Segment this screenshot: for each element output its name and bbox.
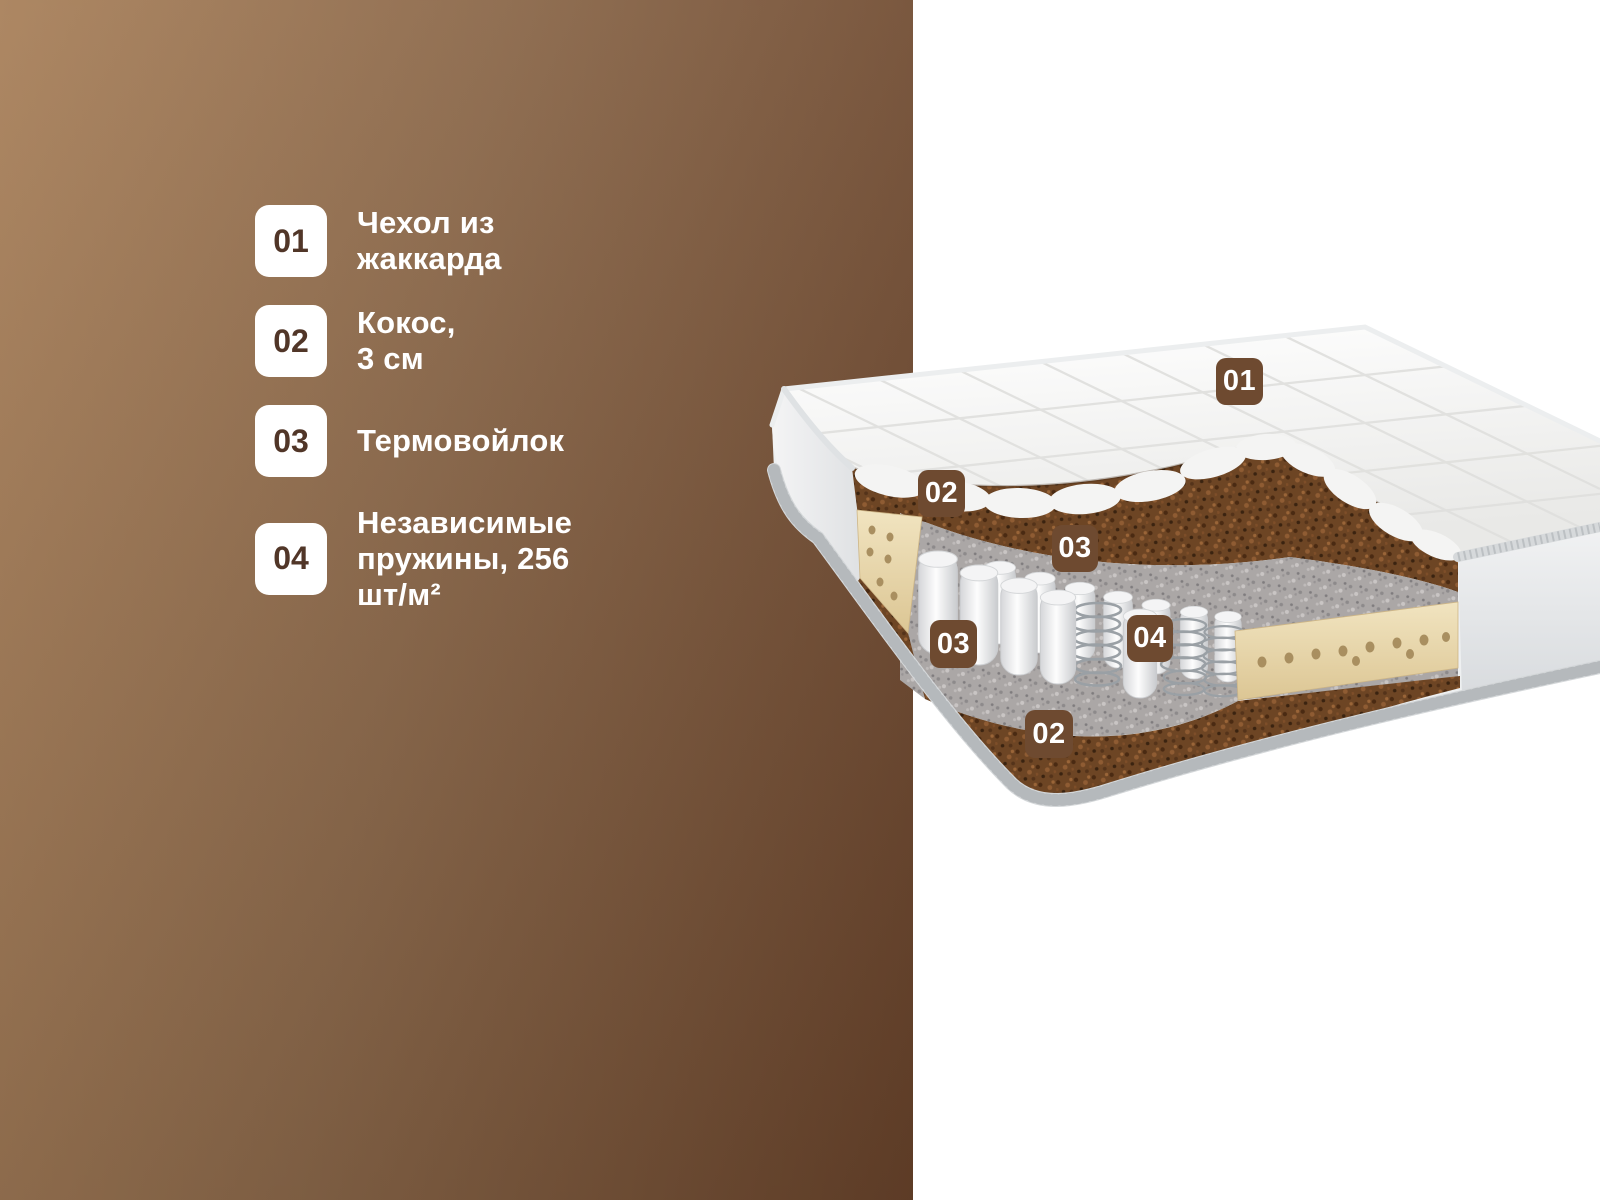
legend-item-felt: 03 Термовойлок — [255, 405, 564, 477]
legend-item-label: Независимые пружины, 256 шт/м² — [357, 505, 572, 613]
legend-number-badge: 01 — [255, 205, 327, 277]
mattress-label-felt-top: 03 — [1052, 525, 1098, 572]
legend-item-springs: 04 Независимые пружины, 256 шт/м² — [255, 505, 572, 613]
legend-number-badge: 02 — [255, 305, 327, 377]
legend-item-label: Термовойлок — [357, 423, 564, 459]
legend-item-label: Кокос, 3 см — [357, 305, 456, 377]
mattress-label-coconut-top: 02 — [918, 470, 965, 517]
infographic-page: 01 02 03 04 03 02 01 Чехол из жаккарда 0… — [0, 0, 1600, 1200]
legend-item-coconut: 02 Кокос, 3 см — [255, 305, 456, 377]
legend-number-badge: 04 — [255, 523, 327, 595]
mattress-label-springs: 04 — [1127, 615, 1173, 662]
mattress-cutaway-illustration — [0, 0, 1600, 1200]
legend-item-label: Чехол из жаккарда — [357, 205, 502, 277]
mattress-label-felt-bottom: 03 — [930, 620, 977, 668]
mattress-label-cover: 01 — [1216, 358, 1263, 405]
mattress-label-coconut-bottom: 02 — [1025, 710, 1073, 758]
legend-number-badge: 03 — [255, 405, 327, 477]
legend-item-cover: 01 Чехол из жаккарда — [255, 205, 502, 277]
